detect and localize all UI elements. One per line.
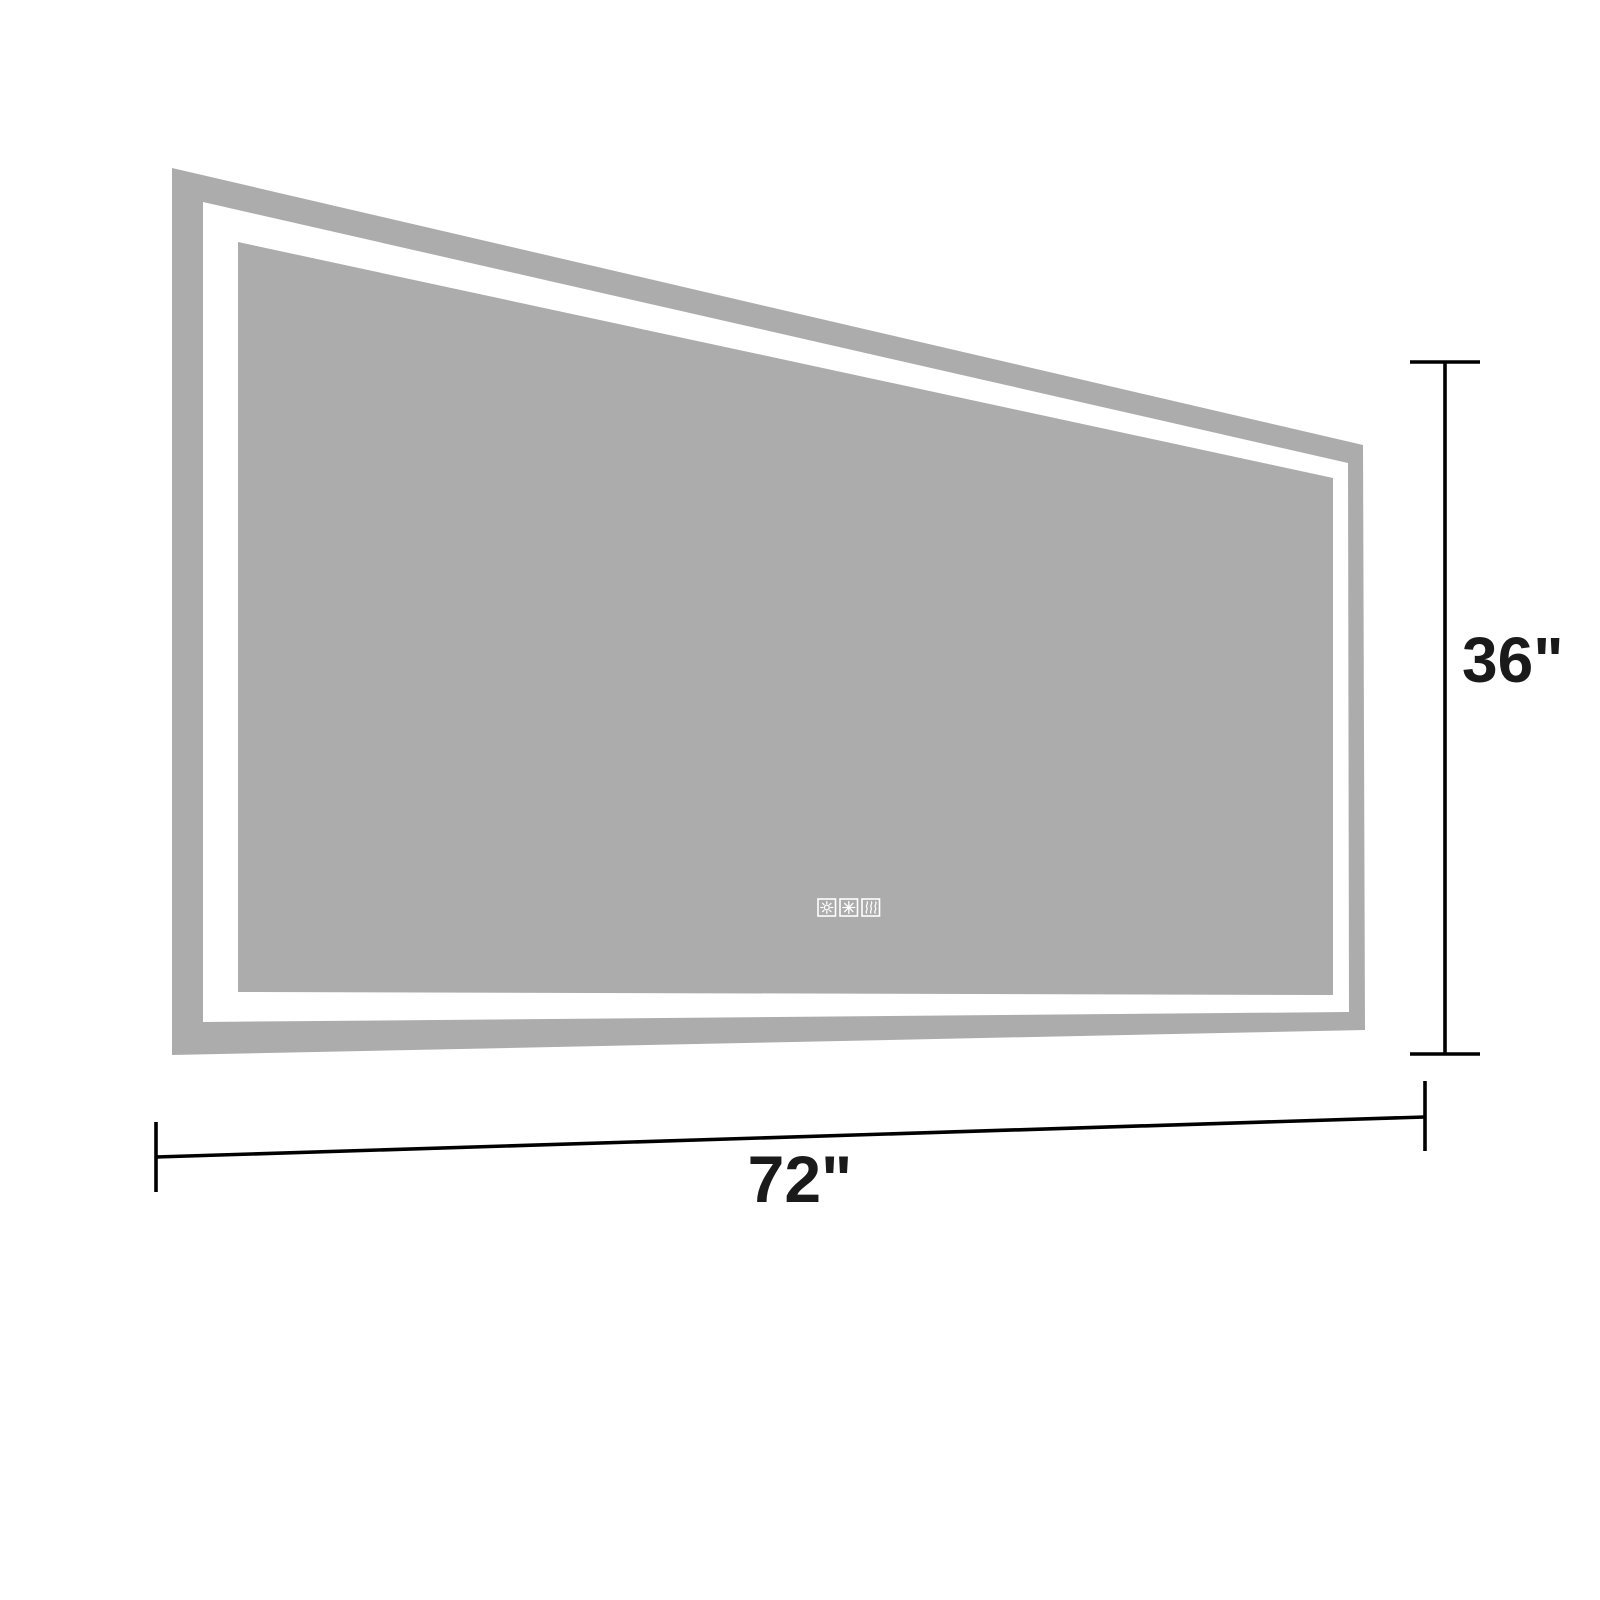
width-dimension-label: 72" [695,1146,905,1212]
height-dimension-label: 36" [1462,628,1564,692]
product-diagram: 36" 72" [0,0,1600,1600]
mirror-illustration [0,0,1600,1600]
snowflake-icon [843,902,855,914]
